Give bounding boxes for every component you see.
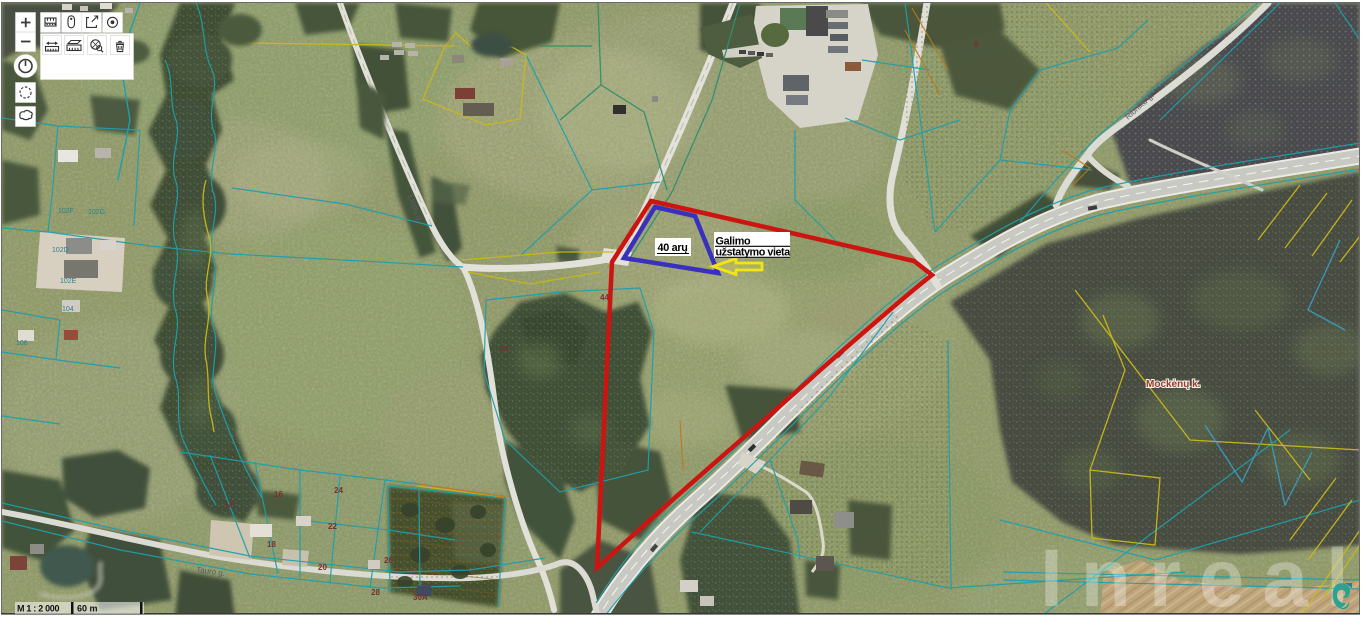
svg-text:26: 26 (384, 556, 393, 565)
svg-text:9: 9 (974, 40, 979, 49)
svg-text:14: 14 (224, 501, 233, 510)
svg-text:102E: 102E (60, 278, 77, 285)
svg-text:16: 16 (274, 490, 283, 499)
svg-text:102D: 102D (52, 247, 69, 254)
svg-text:60 m: 60 m (77, 604, 98, 614)
svg-text:22: 22 (328, 522, 337, 531)
svg-text:Mockėnų k.: Mockėnų k. (1146, 379, 1201, 390)
svg-text:Galimo: Galimo (716, 235, 752, 247)
svg-text:20: 20 (318, 563, 327, 572)
svg-text:M 1 : 2 000: M 1 : 2 000 (17, 604, 60, 614)
svg-text:104: 104 (62, 306, 74, 313)
svg-text:14: 14 (500, 344, 509, 353)
svg-text:18: 18 (267, 540, 276, 549)
svg-text:40 arų: 40 arų (658, 242, 688, 254)
svg-text:102G: 102G (88, 209, 105, 216)
svg-text:Inreal: Inreal (1040, 533, 1366, 620)
svg-text:28: 28 (371, 588, 380, 597)
svg-text:102F: 102F (58, 208, 74, 215)
svg-text:106: 106 (16, 340, 28, 347)
svg-text:24: 24 (334, 486, 343, 495)
svg-text:30A: 30A (413, 593, 428, 602)
